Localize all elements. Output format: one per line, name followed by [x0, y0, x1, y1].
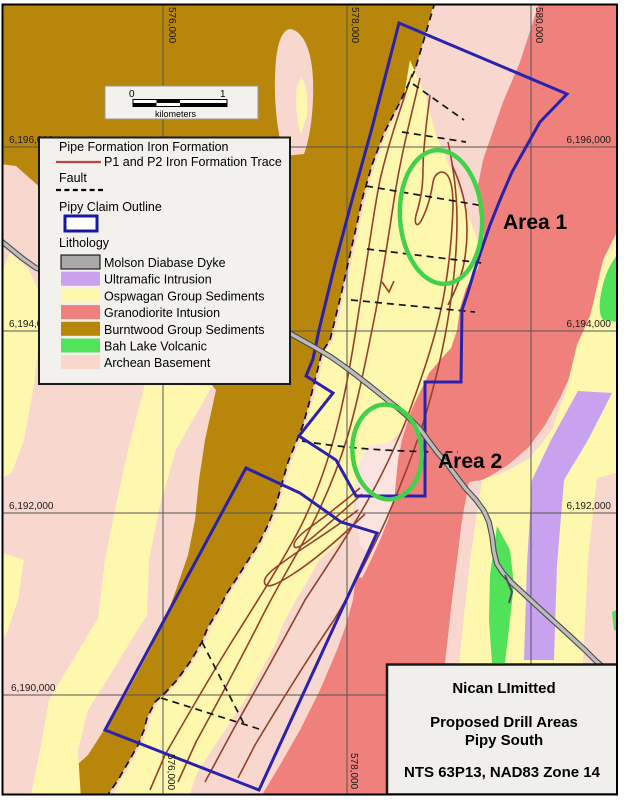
svg-text:Burntwood Group Sediments: Burntwood Group Sediments: [104, 323, 265, 337]
svg-text:6,196,000: 6,196,000: [567, 135, 612, 146]
svg-text:6,194,000: 6,194,000: [567, 319, 612, 330]
svg-text:6,192,000: 6,192,000: [9, 501, 54, 512]
svg-text:Area 1: Area 1: [503, 211, 568, 234]
svg-text:Area 2: Area 2: [438, 450, 502, 473]
svg-text:576,000: 576,000: [166, 7, 177, 44]
svg-text:Fault: Fault: [59, 171, 87, 185]
svg-text:Bah Lake Volcanic: Bah Lake Volcanic: [104, 340, 207, 354]
svg-text:1: 1: [220, 89, 226, 100]
svg-text:Ultramafic Intrusion: Ultramafic Intrusion: [104, 273, 212, 287]
svg-text:Archean Basement: Archean Basement: [104, 356, 211, 370]
svg-text:Ospwagan Group Sediments: Ospwagan Group Sediments: [104, 289, 265, 303]
svg-text:578,000: 578,000: [348, 753, 359, 790]
svg-text:6,192,000: 6,192,000: [567, 501, 612, 512]
svg-text:578,000: 578,000: [349, 7, 360, 44]
svg-text:6,190,000: 6,190,000: [11, 683, 56, 694]
svg-text:0: 0: [129, 89, 135, 100]
svg-text:NTS 63P13, NAD83 Zone 14: NTS 63P13, NAD83 Zone 14: [404, 764, 601, 781]
svg-text:kilometers: kilometers: [155, 109, 197, 119]
svg-text:580,000: 580,000: [533, 7, 544, 44]
svg-text:Pipy Claim Outline: Pipy Claim Outline: [59, 200, 162, 214]
svg-text:P1 and P2 Iron Formation Trace: P1 and P2 Iron Formation Trace: [104, 155, 282, 169]
svg-text:Granodiorite Intusion: Granodiorite Intusion: [104, 306, 220, 320]
svg-text:Proposed Drill Areas: Proposed Drill Areas: [430, 714, 578, 731]
svg-text:Molson Diabase Dyke: Molson Diabase Dyke: [104, 256, 226, 270]
svg-text:Pipy South: Pipy South: [465, 732, 543, 749]
svg-text:Nican LImitted: Nican LImitted: [452, 680, 555, 697]
svg-text:Lithology: Lithology: [59, 236, 110, 250]
svg-text:Pipe Formation Iron Formation: Pipe Formation Iron Formation: [59, 140, 229, 154]
svg-text:576,000: 576,000: [165, 754, 176, 791]
